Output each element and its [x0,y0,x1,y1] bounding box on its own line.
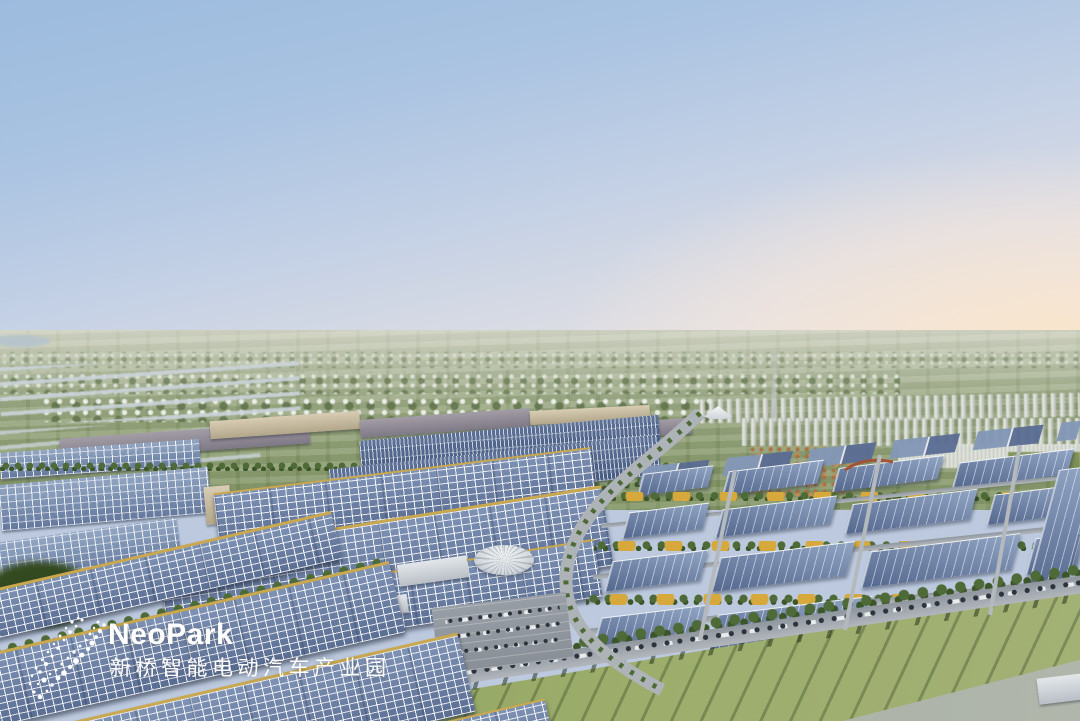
central-boulevard [566,413,700,690]
red-elevated-walkway [845,460,893,470]
aerial-render: NeoPark 新桥智能电动汽车产业园 [0,0,1080,721]
cross-street [700,470,735,640]
logo-wordmark: NeoPark [108,618,233,652]
boulevard-median-trees [566,413,700,690]
logo-dots-icon [28,612,112,704]
dome-building [474,545,534,575]
cross-street [845,455,880,630]
cross-street [990,445,1020,615]
neopark-logo: NeoPark 新桥智能电动汽车产业园 [28,608,358,698]
logo-subtitle: 新桥智能电动汽车产业园 [110,652,391,682]
